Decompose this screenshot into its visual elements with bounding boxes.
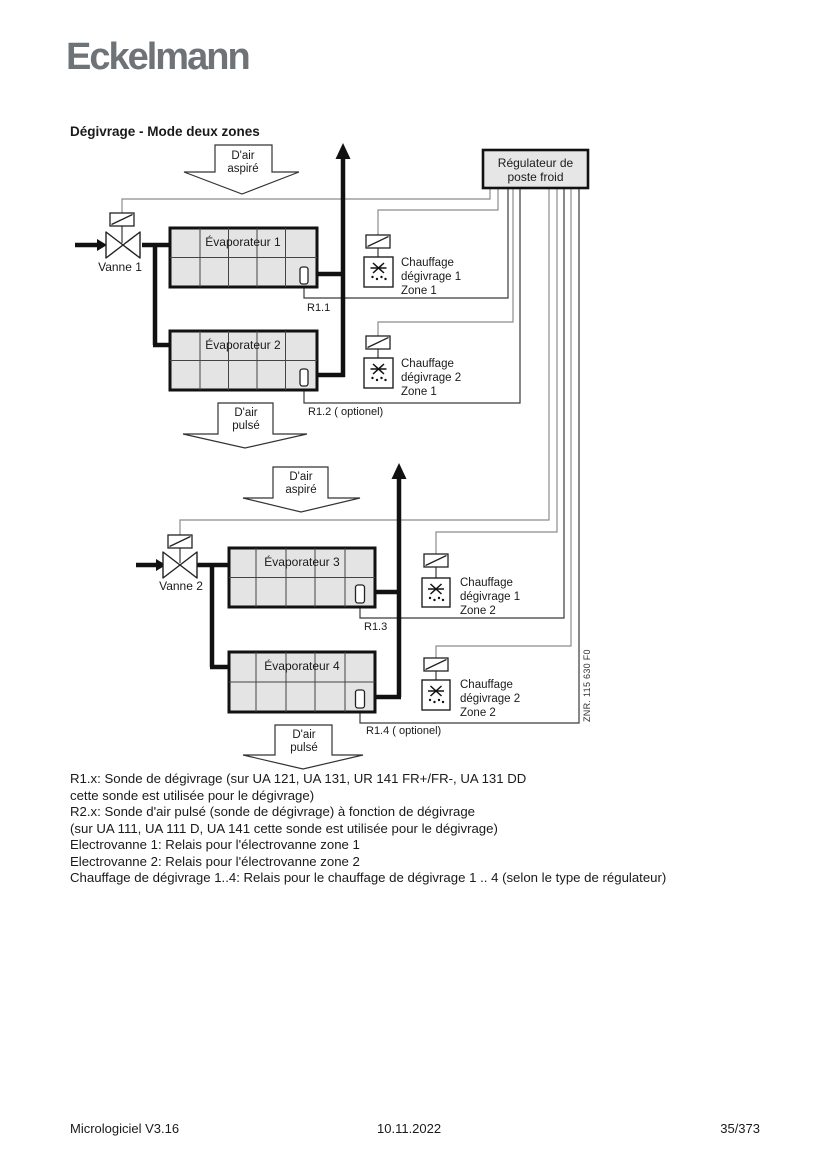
defrost-sensor bbox=[300, 267, 308, 284]
heater-box bbox=[422, 680, 450, 710]
air-banner-label-pulse-zone1: D'airpulsé bbox=[232, 407, 260, 433]
defrost-two-zone-diagram bbox=[0, 0, 827, 1169]
air-banner-label-pulse-zone2: D'airpulsé bbox=[290, 729, 318, 755]
footer-firmware-version: Micrologiciel V3.16 bbox=[70, 1121, 179, 1136]
legend-line: R1.x: Sonde de dégivrage (sur UA 121, UA… bbox=[70, 771, 666, 788]
relay-icon bbox=[424, 554, 448, 567]
legend-line: Electrovanne 2: Relais pour l'électrovan… bbox=[70, 854, 666, 871]
relay-icon bbox=[424, 658, 448, 671]
evaporator3-label: Évaporateur 3 bbox=[264, 556, 339, 569]
valve-icon bbox=[106, 232, 140, 258]
legend-line: R2.x: Sonde d'air pulsé (sonde de dégivr… bbox=[70, 804, 666, 821]
regulator-label: Régulateur deposte froid bbox=[483, 156, 588, 184]
air-banner-label-aspire-zone2: D'airaspiré bbox=[285, 471, 316, 497]
relay-icon bbox=[366, 336, 390, 349]
relay-icon bbox=[168, 535, 192, 548]
relay-icon bbox=[110, 213, 134, 226]
sensor-label-r14: R1.4 ( optionel) bbox=[366, 725, 441, 738]
document-page: Eckelmann Dégivrage - Mode deux zones bbox=[0, 0, 827, 1169]
sensor-label-r11: R1.1 bbox=[307, 302, 330, 315]
sensor-label-r13: R1.3 bbox=[364, 621, 387, 634]
heater3-label: Chauffagedégivrage 1Zone 2 bbox=[460, 576, 520, 618]
valve1-label: Vanne 1 bbox=[98, 261, 142, 274]
drawing-number: ZNR. 115 630 F0 bbox=[582, 649, 592, 722]
footer-page-number: 35/373 bbox=[620, 1121, 760, 1136]
evaporator4-label: Évaporateur 4 bbox=[264, 660, 339, 673]
heater-box bbox=[364, 257, 393, 287]
exhaust-arrow-up-icon bbox=[392, 463, 407, 479]
evaporator1-label: Évaporateur 1 bbox=[205, 236, 280, 249]
relay-icon bbox=[366, 235, 390, 248]
legend-line: Electrovanne 1: Relais pour l'électrovan… bbox=[70, 837, 666, 854]
defrost-sensor bbox=[356, 690, 365, 708]
legend-text: R1.x: Sonde de dégivrage (sur UA 121, UA… bbox=[70, 771, 666, 887]
air-banner-label-aspire-zone1: D'airaspiré bbox=[227, 150, 258, 176]
defrost-sensor bbox=[300, 369, 308, 386]
legend-line: (sur UA 111, UA 111 D, UA 141 cette sond… bbox=[70, 821, 666, 838]
heater4-label: Chauffagedégivrage 2Zone 2 bbox=[460, 678, 520, 720]
heater2-label: Chauffagedégivrage 2Zone 1 bbox=[401, 357, 461, 399]
evaporator2-label: Évaporateur 2 bbox=[205, 339, 280, 352]
valve2-label: Vanne 2 bbox=[159, 580, 203, 593]
exhaust-arrow-up-icon bbox=[336, 143, 351, 159]
heater1-label: Chauffagedégivrage 1Zone 1 bbox=[401, 256, 461, 298]
legend-line: Chauffage de dégivrage 1..4: Relais pour… bbox=[70, 870, 666, 887]
heater-box bbox=[422, 578, 450, 607]
defrost-sensor bbox=[356, 585, 365, 603]
sensor-label-r12: R1.2 ( optionel) bbox=[308, 406, 383, 419]
relay-connectors bbox=[122, 226, 436, 680]
footer-date: 10.11.2022 bbox=[377, 1121, 441, 1136]
legend-line: cette sonde est utilisée pour le dégivra… bbox=[70, 788, 666, 805]
heater-box bbox=[364, 358, 393, 388]
